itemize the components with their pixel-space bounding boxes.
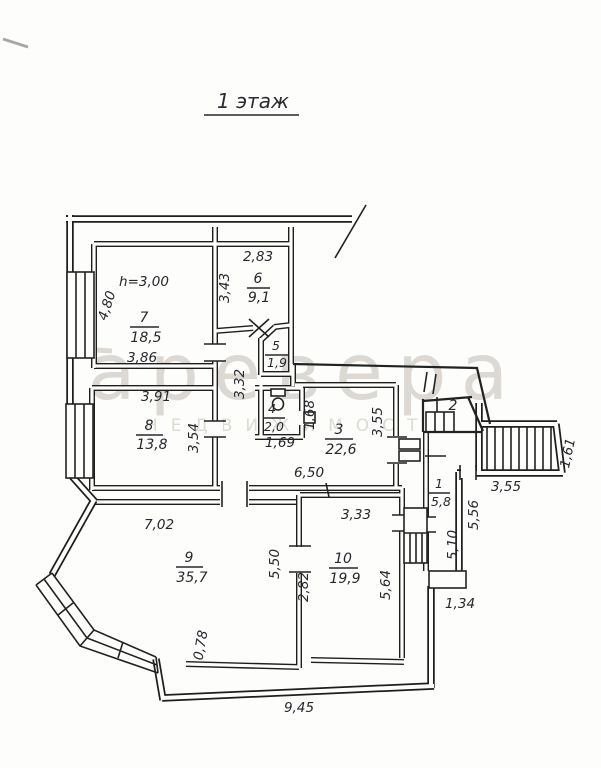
room-3-number: 3: [335, 422, 344, 438]
room-8-number: 8: [145, 418, 154, 434]
dim-1-69: 1,69: [265, 435, 295, 451]
room-1-number: 1: [435, 476, 443, 491]
room-7-number: 7: [140, 310, 149, 326]
dim-4-80: 4,80: [95, 289, 120, 323]
scan-artifact: [3, 39, 28, 47]
dim-6-50: 6,50: [294, 465, 324, 481]
door-leaf-icon: [399, 451, 420, 461]
dim-3-43: 3,43: [217, 273, 233, 303]
dim-3-32: 3,32: [232, 369, 248, 399]
dim-3-55-room3: 3,55: [370, 407, 386, 437]
dim-2-83: 2,83: [243, 249, 273, 265]
dim-3-33: 3,33: [341, 507, 371, 523]
door-leaf-icon: [399, 439, 420, 449]
room-4-area: 2,0: [264, 419, 284, 434]
staircase: [487, 426, 551, 471]
room-9-area: 35,7: [176, 570, 207, 586]
break-line: [335, 205, 366, 258]
dim-7-02: 7,02: [144, 517, 174, 533]
room-10-number: 10: [334, 551, 352, 567]
entry-porch: [429, 571, 466, 588]
room-5-area: 1,9: [267, 355, 287, 370]
room-4-number: 4: [268, 401, 276, 416]
floor-plan-drawing: аревера НЕДВИЖИМОСТЬ: [0, 0, 601, 768]
dim-0-78: 0,78: [191, 629, 212, 661]
room-10-area: 19,9: [329, 571, 360, 587]
floor-plan-page: аревера НЕДВИЖИМОСТЬ: [0, 0, 601, 768]
dim-3-54: 3,54: [186, 423, 202, 453]
dim-5-10: 5,10: [445, 530, 461, 560]
room-6-number: 6: [254, 271, 263, 287]
window-room2: [426, 412, 454, 432]
window-room8: [66, 404, 93, 478]
dim-3-91: 3,91: [141, 389, 171, 405]
room-9-number: 9: [185, 550, 194, 566]
inner-stair-block: [404, 508, 427, 563]
note-ceiling-height: h=3,00: [119, 274, 169, 290]
window-room7: [67, 272, 94, 358]
room-5-number: 5: [272, 338, 280, 353]
dim-1-68: 1,68: [302, 400, 318, 430]
room-7-area: 18,5: [130, 330, 161, 346]
dim-5-50: 5,50: [267, 549, 283, 579]
page-title: 1 этаж: [217, 89, 289, 113]
dim-5-64: 5,64: [378, 570, 394, 600]
room-2-number: 2: [449, 398, 458, 414]
room-1-area: 5,8: [431, 494, 451, 509]
room-3-area: 22,6: [325, 442, 356, 458]
dim-3-55-stairs: 3,55: [491, 479, 521, 495]
dim-9-45: 9,45: [284, 700, 314, 716]
room-8-area: 13,8: [136, 437, 167, 453]
dim-1-34: 1,34: [445, 596, 475, 612]
dim-2-82: 2,82: [296, 572, 312, 602]
room-6-area: 9,1: [248, 290, 270, 306]
dim-3-86: 3,86: [127, 350, 157, 366]
dim-5-56: 5,56: [466, 500, 482, 530]
bay-window: [36, 573, 158, 673]
